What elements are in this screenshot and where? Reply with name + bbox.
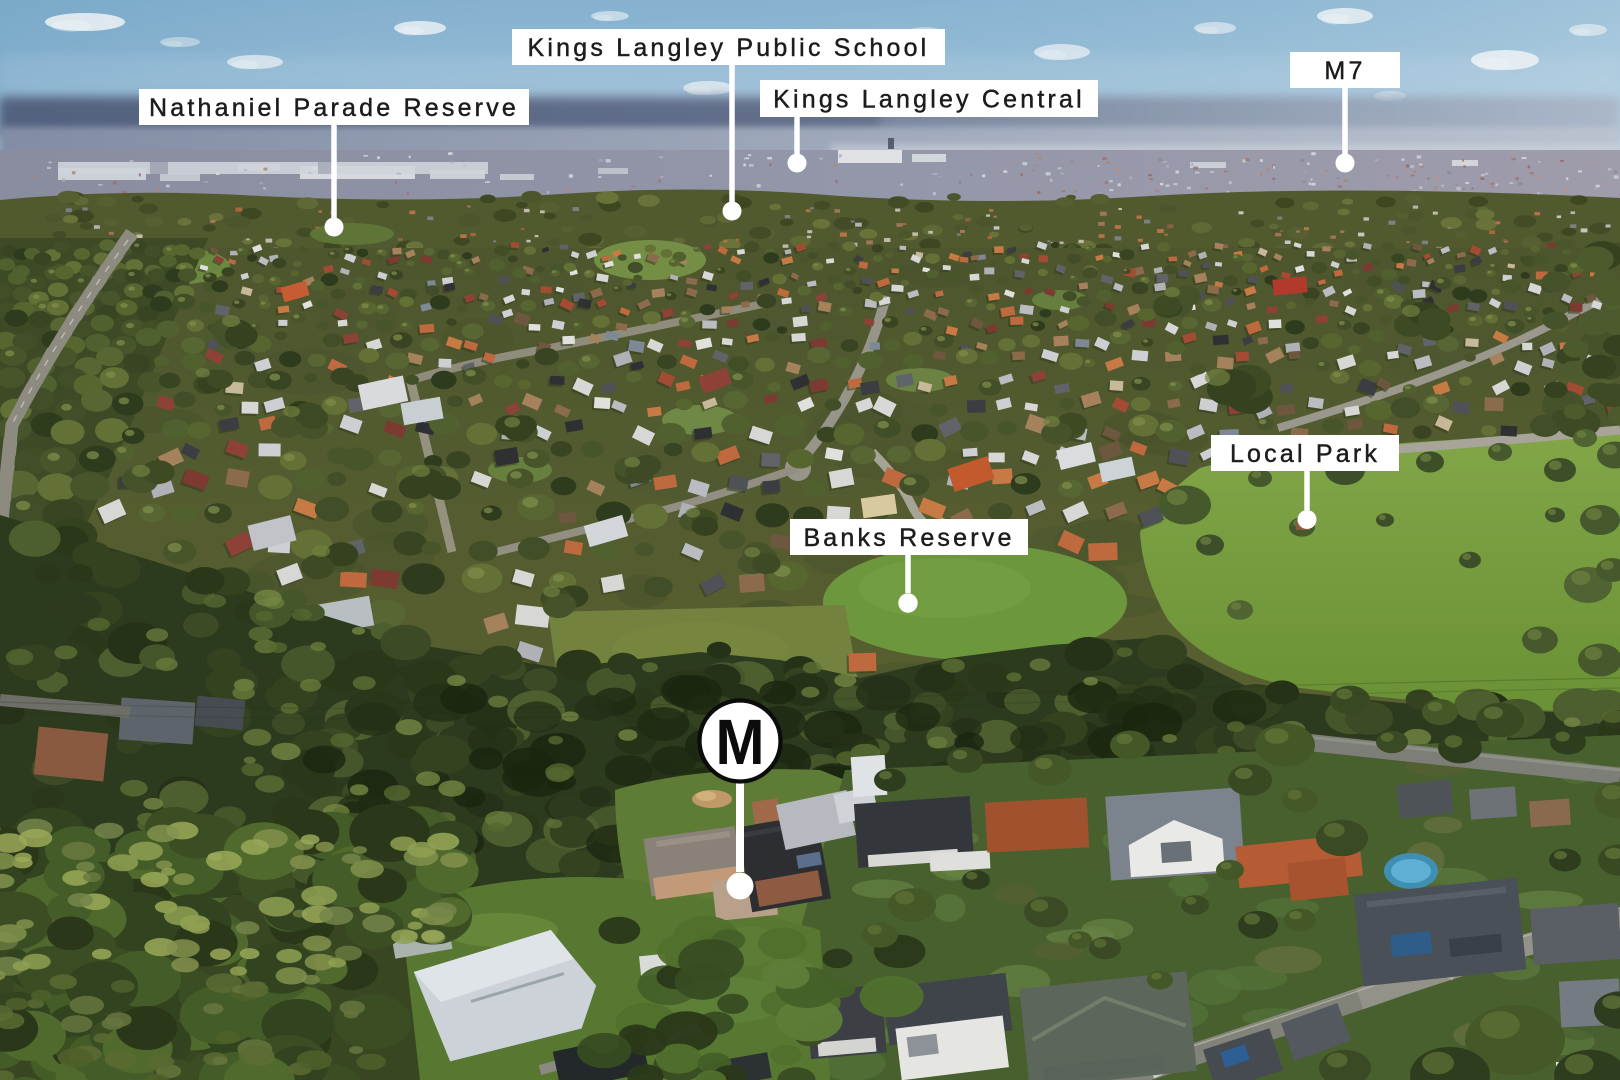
svg-text:Local Park: Local Park [1230, 440, 1380, 468]
svg-text:M: M [716, 706, 765, 778]
svg-text:Kings Langley Public School: Kings Langley Public School [528, 34, 930, 62]
svg-text:Kings Langley Central: Kings Langley Central [773, 85, 1085, 113]
svg-text:Nathaniel Parade Reserve: Nathaniel Parade Reserve [149, 94, 519, 122]
svg-text:M7: M7 [1324, 57, 1365, 85]
svg-text:Banks Reserve: Banks Reserve [803, 524, 1014, 552]
